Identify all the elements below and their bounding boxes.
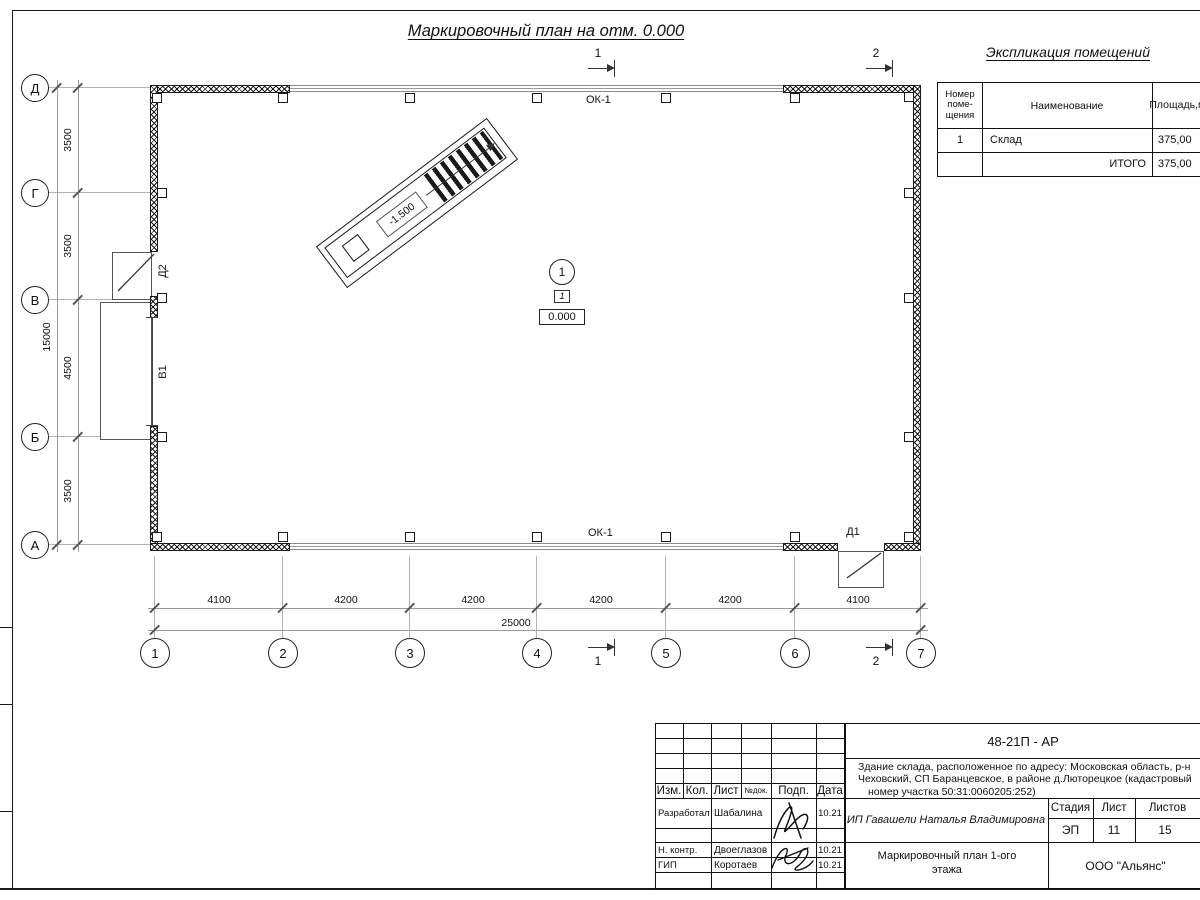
window-ok1-top: [290, 85, 783, 92]
column: [157, 293, 167, 303]
axis-circle-g: Г: [21, 179, 49, 207]
column: [278, 93, 288, 103]
axis-circle-6: 6: [780, 638, 810, 668]
section-1-number-bottom: 1: [588, 654, 608, 668]
dim-bottom-3: 4200: [443, 594, 503, 606]
room-number-box: 1: [554, 290, 570, 303]
axis-line-d: [49, 87, 150, 88]
wall-bottom-right-segment: [884, 543, 921, 551]
room-number-circle: 1: [549, 259, 575, 285]
object-description-line2: Чеховский, СП Баранцевское, в районе д.Л…: [858, 773, 1192, 785]
col-list: Лист: [711, 783, 741, 798]
floor-level-box: 0.000: [539, 309, 585, 325]
section-2-bar-top: [892, 60, 893, 77]
axis-label: В: [31, 293, 40, 308]
axis-label: 1: [151, 646, 158, 661]
axis-line-1: [154, 556, 155, 638]
titleblock-line: [655, 768, 844, 769]
column: [904, 432, 914, 442]
column: [532, 532, 542, 542]
axis-line-3: [409, 556, 410, 638]
row1-date: 10.21: [816, 806, 844, 820]
axis-circle-4: 4: [522, 638, 552, 668]
sheet-title: Маркировочный план 1-ого этажа: [846, 850, 1048, 877]
explication-total-area: 375,00: [1158, 153, 1200, 175]
explication-total-label: ИТОГО: [990, 153, 1146, 175]
col-izm: Изм.: [655, 783, 683, 798]
axis-circle-3: 3: [395, 638, 425, 668]
axis-line-5: [665, 556, 666, 638]
sheet-title-line2: этажа: [846, 864, 1048, 878]
axis-label: 4: [533, 646, 540, 661]
explication-row1-area: 375,00: [1158, 129, 1200, 151]
column: [661, 93, 671, 103]
floor-level-value: 0.000: [548, 311, 576, 323]
row2-date: 10.21: [816, 843, 844, 857]
dim-bottom-total: 25000: [486, 617, 546, 629]
column: [405, 93, 415, 103]
dim-bottom-5: 4200: [700, 594, 760, 606]
door-label-d1: Д1: [838, 526, 868, 538]
ramp: -1.500: [316, 118, 518, 288]
dim-left-4: 3500: [62, 461, 74, 521]
frame-mark: [0, 811, 12, 812]
section-1-bar-bottom: [614, 639, 615, 656]
loading-dock-v1: [100, 302, 152, 440]
row1-name: Шабалина: [714, 806, 769, 820]
row3-name: Коротаев: [714, 858, 769, 872]
row3-role: ГИП: [658, 858, 710, 872]
axis-line-7: [920, 556, 921, 638]
window-label-bottom: ОК-1: [588, 527, 613, 539]
col-ndok: №док.: [741, 783, 771, 798]
explication-col-line: [1152, 82, 1153, 177]
section-2-number-bottom: 2: [866, 654, 886, 668]
wall-bottom-segment-2: [783, 543, 838, 551]
axis-circle-d: Д: [21, 74, 49, 102]
row2-name: Двоеглазов: [714, 843, 769, 857]
explication-col-name: Наименование: [984, 84, 1150, 127]
frame-mark: [0, 627, 12, 628]
axis-label: 7: [917, 646, 924, 661]
dim-left-2: 3500: [62, 216, 74, 276]
dim-line-left-inner: [78, 80, 79, 552]
column: [405, 532, 415, 542]
axis-circle-1: 1: [140, 638, 170, 668]
axis-label: Г: [31, 186, 38, 201]
axis-label: 3: [406, 646, 413, 661]
frame-top: [12, 10, 1200, 11]
object-description-line1: Здание склада, расположенное по адресу: …: [858, 761, 1192, 773]
dim-bottom-1: 4100: [189, 594, 249, 606]
column: [790, 532, 800, 542]
porch-d1: [838, 551, 884, 588]
frame-mark: [0, 704, 12, 705]
axis-label: Д: [31, 81, 40, 96]
axis-circle-2: 2: [268, 638, 298, 668]
col-data: Дата: [816, 783, 844, 798]
sheet-title-line1: Маркировочный план 1-ого: [846, 850, 1048, 864]
titleblock-line: [655, 753, 844, 754]
column: [157, 188, 167, 198]
column: [532, 93, 542, 103]
dim-left-total: 15000: [41, 307, 53, 367]
door-label-d2: Д2: [157, 256, 169, 286]
axis-circle-v: В: [21, 286, 49, 314]
column: [904, 293, 914, 303]
dim-line-bottom-outer: [148, 630, 928, 631]
axis-circle-a: А: [21, 531, 49, 559]
sheet-value: 11: [1093, 819, 1135, 841]
row3-date: 10.21: [816, 858, 844, 872]
section-2-number-top: 2: [866, 46, 886, 60]
stage-value: ЭП: [1048, 819, 1093, 841]
column: [904, 92, 914, 102]
object-description-line3: номер участка 50:31:0060205:252): [858, 786, 1192, 798]
axis-line-2: [282, 556, 283, 638]
stage-label: Стадия: [1048, 799, 1093, 817]
column: [152, 532, 162, 542]
row2-role: Н. контр.: [658, 843, 710, 857]
explication-col-room-number: Номер поме- щения: [939, 84, 981, 127]
row1-role: Разработал: [658, 806, 710, 820]
titleblock-line: [655, 738, 844, 739]
wall-top-right-segment: [783, 85, 921, 93]
titleblock-line: [844, 758, 1200, 759]
column: [790, 93, 800, 103]
wall-top-left-segment: [150, 85, 290, 93]
frame-left: [12, 10, 13, 889]
explication-col-line: [982, 82, 983, 177]
column: [661, 532, 671, 542]
titleblock-line: [711, 723, 712, 889]
dim-bottom-2: 4200: [316, 594, 376, 606]
room-number: 1: [559, 265, 566, 279]
drawing-sheet: { "sheet": { "plan_title": "Маркировочны…: [0, 0, 1200, 900]
dim-bottom-4: 4200: [571, 594, 631, 606]
explication-col-area: Площадь, м²: [1154, 84, 1200, 127]
axis-label: 5: [662, 646, 669, 661]
wall-left-upper: [150, 85, 158, 252]
dim-left-1: 3500: [62, 110, 74, 170]
plan-title: Маркировочный план на отм. 0.000: [396, 22, 696, 41]
explication-row1-name: Склад: [990, 129, 1150, 151]
axis-label: А: [31, 538, 40, 553]
dim-bottom-6: 4100: [828, 594, 888, 606]
gate-v1-line: [152, 318, 153, 426]
company-name: ООО "Альянс": [1048, 842, 1200, 889]
gate-v1-cap: [146, 425, 158, 426]
column: [278, 532, 288, 542]
axis-circle-5: 5: [651, 638, 681, 668]
signature-1: [768, 796, 818, 842]
area-header-line1: Площадь,: [1149, 99, 1198, 112]
column: [152, 93, 162, 103]
client-name: ИП Гавашели Наталья Владимировна: [846, 798, 1046, 842]
axis-line-a: [49, 544, 150, 545]
column: [157, 432, 167, 442]
dim-left-3: 4500: [62, 338, 74, 398]
porch-d2: [112, 252, 152, 300]
window-ok1-bottom: [290, 543, 783, 550]
wall-right: [913, 85, 921, 551]
axis-label: 2: [279, 646, 286, 661]
column: [904, 188, 914, 198]
dim-line-left-outer: [57, 80, 58, 552]
axis-label: Б: [31, 430, 40, 445]
axis-line-6: [794, 556, 795, 638]
sheets-value: 15: [1135, 819, 1195, 841]
column: [904, 532, 914, 542]
explication-row1-number: 1: [939, 129, 981, 151]
sheets-label: Листов: [1135, 799, 1200, 817]
section-1-bar-top: [614, 60, 615, 77]
axis-circle-7: 7: [906, 638, 936, 668]
sheet-label: Лист: [1093, 799, 1135, 817]
wall-bottom-left-segment: [150, 543, 290, 551]
explication-title: Экспликация помещений: [940, 44, 1196, 60]
section-2-bar-bottom: [892, 639, 893, 656]
axis-line-g: [49, 192, 150, 193]
axis-label: 6: [791, 646, 798, 661]
axis-circle-b: Б: [21, 423, 49, 451]
dim-line-bottom-inner: [148, 608, 928, 609]
col-kol: Кол.: [683, 783, 711, 798]
room-number-small: 1: [559, 291, 564, 302]
signature-2: [768, 840, 818, 876]
window-label-top: ОК-1: [586, 94, 611, 106]
section-1-number-top: 1: [588, 46, 608, 60]
object-description: Здание склада, расположенное по адресу: …: [858, 761, 1192, 798]
gate-label-v1: В1: [157, 357, 169, 387]
gate-v1-cap: [146, 317, 158, 318]
doc-number: 48-21П - АР: [846, 728, 1200, 754]
